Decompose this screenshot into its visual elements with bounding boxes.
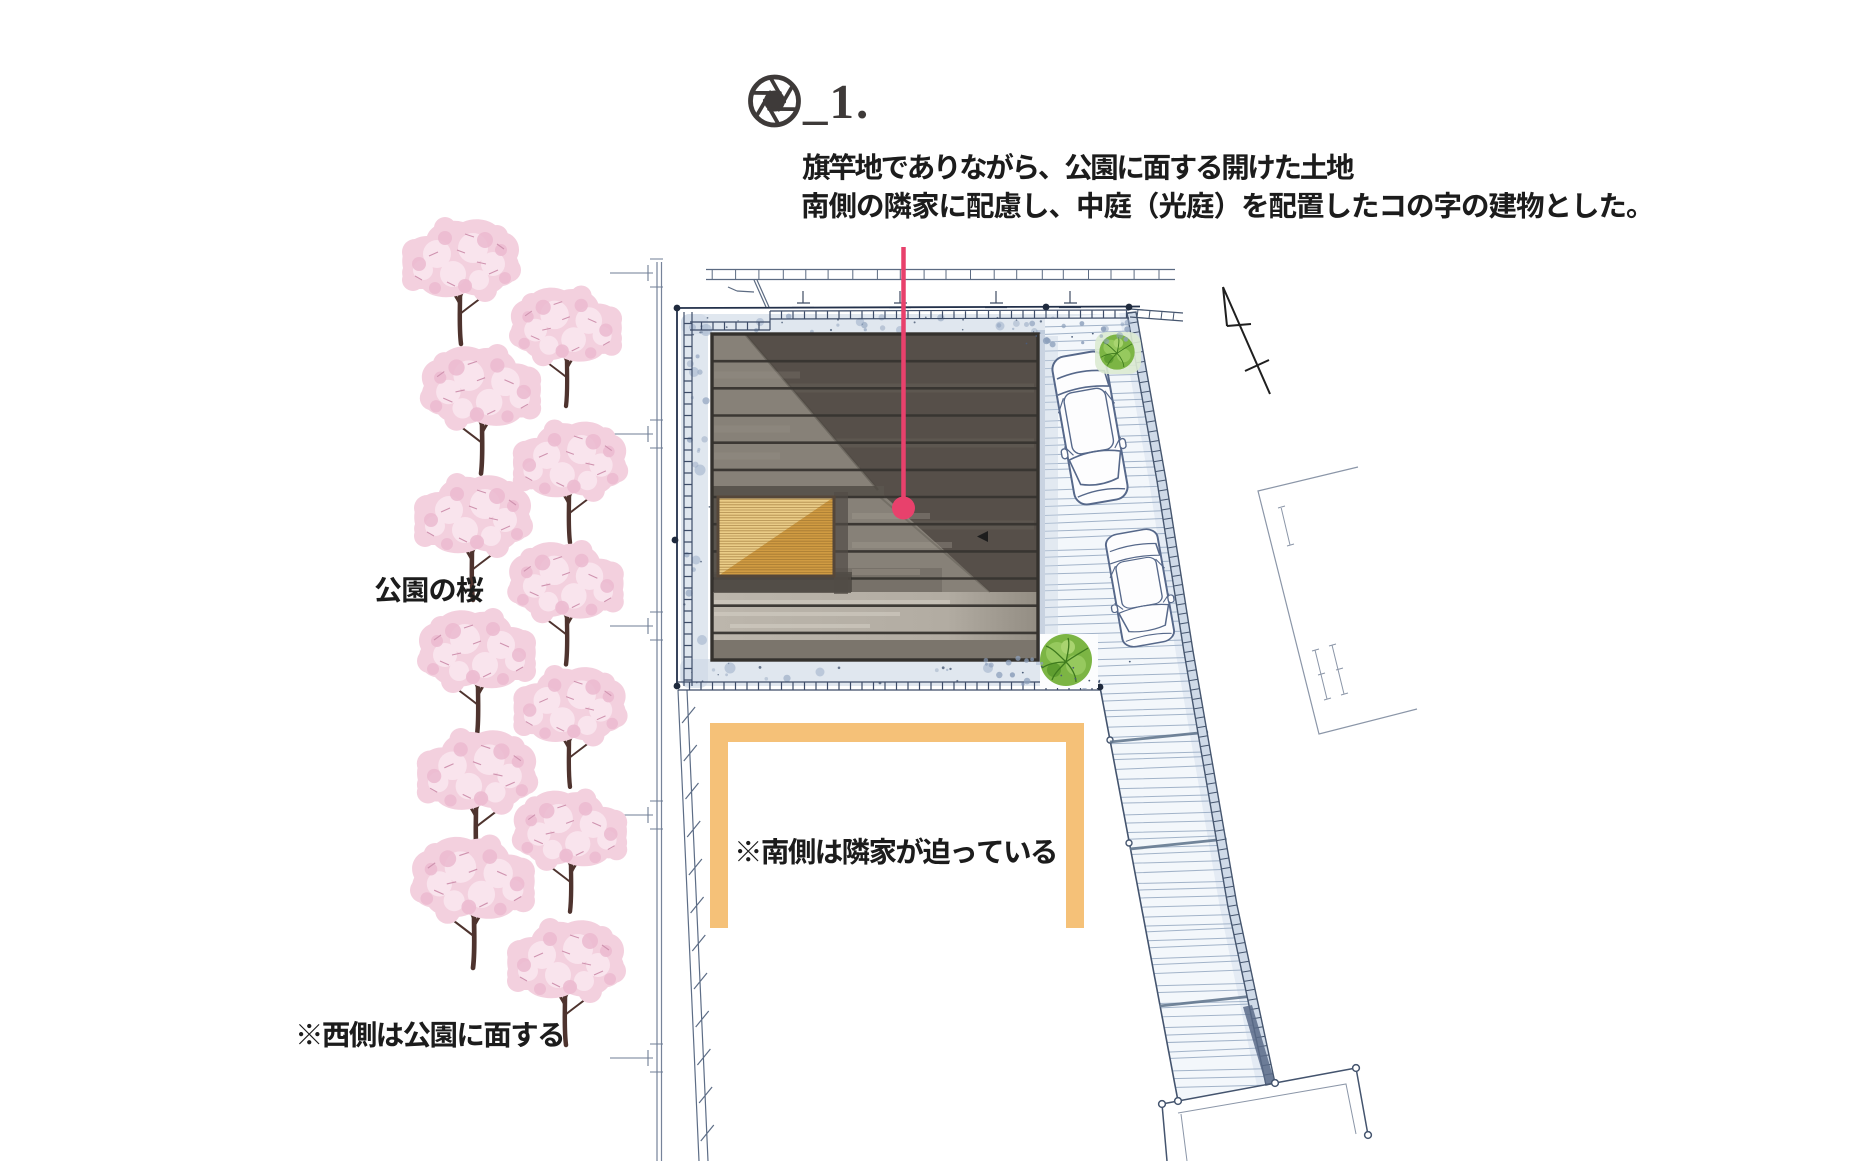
svg-text:_1.: _1.	[802, 74, 870, 129]
